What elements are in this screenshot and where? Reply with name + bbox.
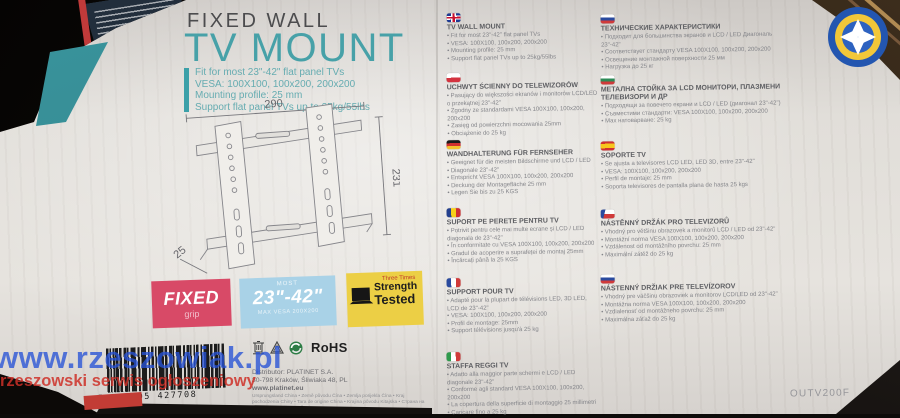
flag-fr-icon (447, 278, 461, 287)
lang-block-cz: NÁSTĚNNÝ DRŽÁK PRO TELEVIZORŮ • Vhodný p… (601, 206, 782, 260)
product-title-line2: TV MOUNT (184, 26, 405, 71)
badge-fixed-grip: FIXED grip (151, 279, 232, 329)
cardboard-crease (436, 0, 438, 414)
lang-lines: • Подходящи за повечето екрани и LCD / L… (601, 100, 781, 126)
lang-lines: • Vhodný pro většinu obrazovek a monitor… (601, 226, 782, 260)
lang-lines: • Подходит для большинства экранов и LCD… (601, 31, 782, 72)
flag-gb-icon (447, 13, 461, 22)
flag-de-icon (447, 140, 461, 149)
box-side-panel (83, 0, 189, 50)
rzeszowiak-logo (826, 5, 890, 69)
lang-lines: • Adatto alla maggior parte schermi e LC… (447, 370, 600, 418)
flag-pl-icon (446, 73, 460, 82)
lang-block-bg: МЕТАЛНА СТОЙКА ЗА LCD МОНИТОРИ, ПЛАЗМЕНИ… (601, 72, 782, 126)
dim-width-label: 290 (264, 98, 283, 111)
flag-ro-icon (447, 208, 461, 217)
mount-technical-drawing: 290 231 25 (160, 96, 400, 278)
lang-block-es: SOPORTE TV • Se ajusta a televisores LCD… (601, 138, 782, 192)
lang-block-pl: UCHWYT ŚCIENNY DO TELEWIZORÓW • Pasujący… (446, 71, 599, 139)
badge-strength-tested: Three Times Strength Tested (346, 271, 424, 328)
flag-bg-icon (601, 75, 615, 84)
watermark-tagline: rzeszowski serwis ogłoszeniowy (0, 372, 256, 391)
side-panel-text-lines (94, 0, 177, 37)
lang-lines: • Potrivit pentru cele mai multe ecrane … (447, 226, 600, 267)
lang-block-it: STAFFA REGGI TV • Adatto alla maggior pa… (446, 350, 599, 418)
lang-lines: • Vhodný pre väčšinu obrazoviek a monito… (601, 291, 782, 325)
distributor-website: www.platinet.eu (252, 385, 348, 393)
lang-block-de: WANDHALTERUNG FÜR FERNSEHER • Geeignet f… (447, 138, 600, 199)
flag-sk-icon (601, 274, 615, 283)
lang-lines: • Adapté pour la plupart de télévisions … (447, 296, 600, 337)
lang-lines: • Geeignet für die meisten Bildschirme u… (447, 158, 600, 199)
lang-lines: • Se ajusta a televisores LCD LED, LED 3… (601, 158, 782, 192)
rohs-label: RoHS (311, 340, 348, 355)
flag-es-icon (601, 141, 615, 150)
lang-title: МЕТАЛНА СТОЙКА ЗА LCD МОНИТОРИ, ПЛАЗМЕНИ… (601, 83, 781, 102)
flag-ru-icon (601, 14, 615, 23)
badge-size-title: 23"-42" (240, 285, 337, 310)
badge-strength-line2: Tested (374, 291, 418, 305)
watermark-site: www.rzeszowiak.pl (0, 340, 282, 376)
lang-block-fr: SUPPORT POUR TV • Adapté pour la plupart… (447, 276, 600, 337)
green-dot-icon (289, 341, 303, 355)
flag-it-icon (446, 352, 460, 361)
lang-block-ru: ТЕХНИЧЕСКИЕ ХАРАКТЕРИСТИКИ • Подходит дл… (601, 11, 782, 72)
distributor-line2: 30-798 Kraków, Śliwiaka 48, PL (252, 377, 348, 385)
lang-block-ro: SUPORT PE PERETE PENTRU TV • Potrivit pe… (447, 206, 600, 267)
dim-depth-label: 25 (171, 244, 188, 261)
tv-icon (352, 288, 370, 302)
lang-lines: • Fit for most 23"-42" flat panel TVs • … (447, 31, 600, 64)
lang-block-en: TV WALL MOUNT • Fit for most 23"-42" fla… (447, 11, 600, 64)
lang-block-sk: NÁSTENNÝ DRŽIAK PRE TELEVÍZOROV • Vhodný… (601, 271, 782, 325)
product-box-photo: FIXED WALL TV MOUNT Fit for most 23"-42"… (0, 0, 900, 414)
badge-screen-size: MOST 23"-42" MAX VESA 200X200 (239, 275, 337, 328)
model-number: OUTV200F (790, 387, 850, 399)
dim-height-label: 231 (389, 168, 400, 187)
badge-fixed-title: FIXED (151, 279, 231, 311)
lang-lines: • Pasujący do większości ekranów i monit… (447, 91, 600, 139)
flag-cz-icon (601, 209, 615, 218)
